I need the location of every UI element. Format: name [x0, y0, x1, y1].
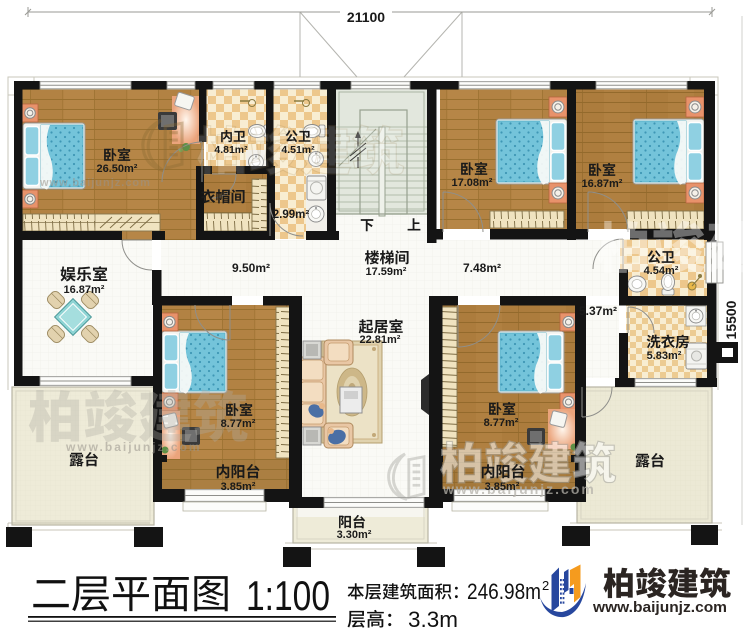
svg-text:8.77m²: 8.77m² — [484, 417, 519, 429]
svg-text:www.baijunjz.com: www.baijunjz.com — [592, 599, 727, 616]
svg-text:17.08m²: 17.08m² — [452, 177, 493, 189]
svg-text:26.50m²: 26.50m² — [97, 163, 138, 175]
svg-text:15500: 15500 — [723, 300, 739, 339]
svg-text:4.81m²: 4.81m² — [214, 144, 248, 156]
svg-text:www.baijunjz.com: www.baijunjz.com — [65, 440, 202, 454]
svg-text:5.83m²: 5.83m² — [647, 350, 682, 362]
svg-text:2: 2 — [542, 578, 549, 593]
svg-text:22.81m²: 22.81m² — [360, 334, 401, 346]
svg-text:246.98m: 246.98m — [467, 579, 541, 604]
svg-text:4.51m²: 4.51m² — [281, 144, 315, 156]
svg-text:16.87m²: 16.87m² — [64, 284, 105, 296]
svg-text:3.3m: 3.3m — [408, 607, 458, 631]
svg-text:3.85m²: 3.85m² — [485, 481, 520, 493]
svg-text:9.50m²: 9.50m² — [232, 261, 270, 275]
svg-text:2.99m²: 2.99m² — [273, 209, 310, 221]
svg-text:8.77m²: 8.77m² — [221, 418, 256, 430]
svg-text:7.48m²: 7.48m² — [463, 261, 501, 275]
svg-text:4.54m²: 4.54m² — [644, 265, 679, 277]
svg-text:21100: 21100 — [347, 9, 385, 25]
svg-text:17.59m²: 17.59m² — [366, 266, 407, 278]
svg-text:www.baijunjz.com: www.baijunjz.com — [39, 177, 151, 189]
svg-text:3.85m²: 3.85m² — [221, 481, 256, 493]
svg-text:5.37m²: 5.37m² — [579, 304, 617, 318]
svg-text:1:100: 1:100 — [246, 572, 330, 619]
svg-text:3.30m²: 3.30m² — [337, 529, 372, 541]
svg-text:16.87m²: 16.87m² — [582, 178, 623, 190]
